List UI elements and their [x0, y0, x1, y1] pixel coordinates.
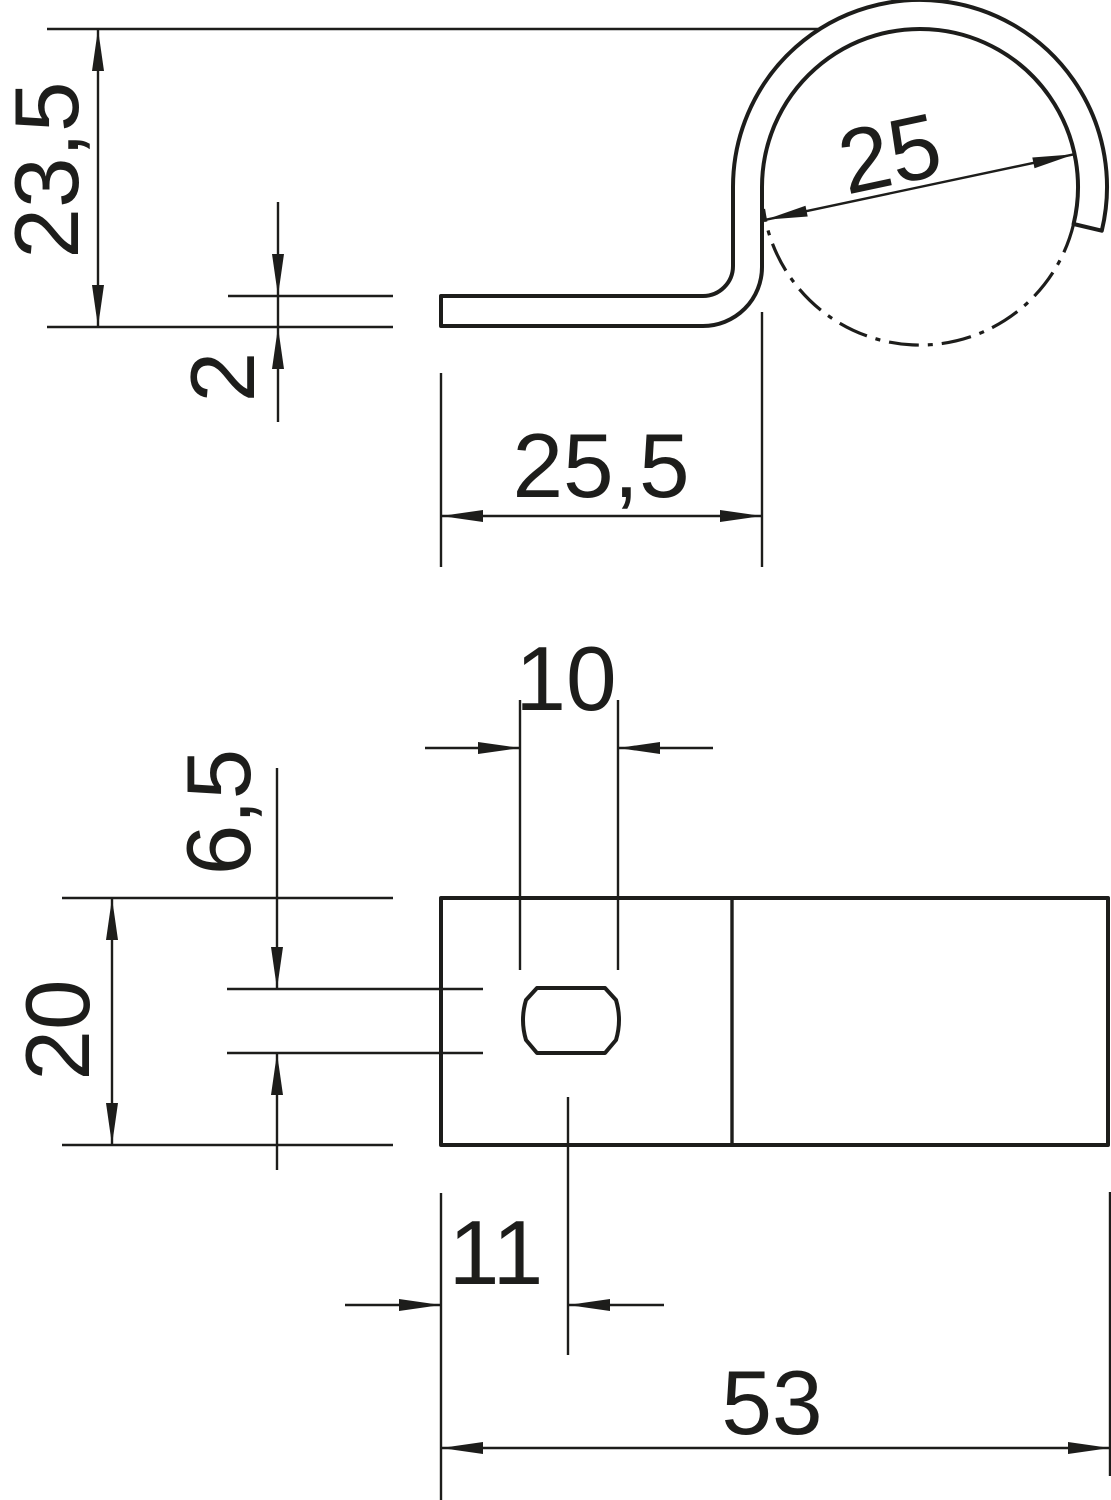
dim-overall-height: 23,5	[0, 29, 818, 327]
dim-strip-width: 20	[8, 898, 393, 1145]
arrowhead-down-icon	[272, 254, 284, 296]
strip-outline	[441, 898, 1108, 1145]
dim-label-slot-length: 10	[515, 629, 616, 730]
clip-profile-outline	[441, 0, 1107, 326]
dim-slot-offset: 11	[345, 1097, 664, 1500]
arrowhead-left-icon	[441, 510, 483, 522]
side-view: 23,5 2 25 25,5	[0, 0, 1107, 567]
arrowhead-left-icon	[568, 1299, 610, 1311]
dim-label-diameter: 25	[830, 94, 950, 214]
plan-view: 10 6,5 20 11	[8, 629, 1110, 1500]
arrowhead-right-icon	[1068, 1442, 1110, 1454]
arrowhead-down-icon	[92, 285, 104, 327]
technical-drawing-page: 23,5 2 25 25,5	[0, 0, 1111, 1500]
dim-label-strip-width: 20	[8, 979, 109, 1080]
dim-label-overall-length: 53	[721, 1353, 822, 1454]
arrowhead-left-icon	[618, 742, 660, 754]
dim-leg-length: 25,5	[441, 312, 762, 567]
dim-label-slot-width: 6,5	[169, 749, 270, 876]
arrowhead-down-icon	[271, 947, 283, 989]
technical-drawing-canvas: 23,5 2 25 25,5	[0, 0, 1111, 1500]
pipe-centerline-circle	[764, 209, 1074, 345]
arrowhead-right-icon	[399, 1299, 441, 1311]
dim-material-thickness: 2	[173, 202, 393, 422]
dim-label-thickness: 2	[173, 352, 274, 403]
arrowhead-up-icon	[271, 1053, 283, 1095]
arrowhead-right-icon	[720, 510, 762, 522]
dim-label-slot-offset: 11	[449, 1203, 543, 1304]
dim-slot-length: 10	[425, 629, 713, 970]
dim-label-leg-length: 25,5	[512, 416, 689, 517]
dim-slot-width: 6,5	[169, 749, 483, 1170]
arrowhead-down-icon	[106, 1103, 118, 1145]
mounting-slot	[523, 988, 619, 1053]
dim-clamping-diameter: 25	[766, 94, 1075, 219]
dim-label-overall-height: 23,5	[0, 81, 98, 258]
arrowhead-right-icon	[1032, 154, 1074, 168]
arrowhead-left-icon	[766, 206, 808, 220]
arrowhead-up-icon	[106, 898, 118, 940]
arrowhead-up-icon	[92, 29, 104, 71]
arrowhead-left-icon	[441, 1442, 483, 1454]
arrowhead-right-icon	[478, 742, 520, 754]
